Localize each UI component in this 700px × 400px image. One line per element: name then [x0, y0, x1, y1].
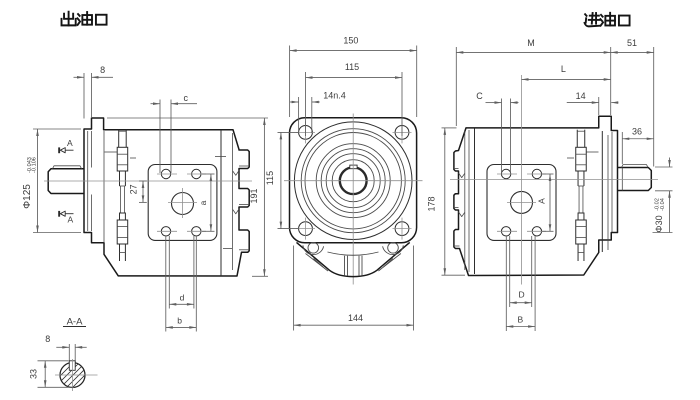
- svg-text:A-A: A-A: [67, 317, 84, 328]
- svg-text:C: C: [476, 91, 483, 101]
- svg-text:-0.04: -0.04: [660, 198, 666, 211]
- svg-text:A: A: [67, 215, 73, 225]
- svg-text:D: D: [519, 290, 525, 300]
- svg-text:b: b: [177, 315, 182, 325]
- svg-text:L: L: [561, 64, 566, 74]
- svg-text:d: d: [180, 293, 185, 303]
- svg-text:A: A: [537, 198, 547, 204]
- svg-text:c: c: [183, 93, 188, 103]
- svg-text:A: A: [67, 138, 73, 148]
- svg-text:14n.4: 14n.4: [323, 90, 346, 100]
- svg-text:115: 115: [345, 62, 359, 72]
- svg-text:150: 150: [343, 36, 358, 46]
- svg-text:M: M: [527, 38, 535, 48]
- svg-text:178: 178: [426, 196, 436, 211]
- svg-text:Φ30: Φ30: [654, 215, 664, 232]
- svg-text:14: 14: [576, 91, 586, 101]
- svg-text:-0.106: -0.106: [31, 157, 37, 173]
- svg-text:8: 8: [45, 334, 50, 344]
- svg-text:36: 36: [632, 127, 642, 137]
- svg-text:33: 33: [28, 369, 38, 379]
- svg-text:Φ125: Φ125: [22, 184, 33, 209]
- svg-text:51: 51: [627, 38, 637, 48]
- svg-text:144: 144: [348, 313, 363, 323]
- svg-text:115: 115: [265, 171, 275, 185]
- svg-text:B: B: [517, 314, 523, 324]
- svg-text:27: 27: [128, 184, 138, 194]
- svg-text:8: 8: [100, 65, 105, 75]
- svg-text:191: 191: [249, 188, 259, 203]
- svg-text:a: a: [198, 200, 208, 205]
